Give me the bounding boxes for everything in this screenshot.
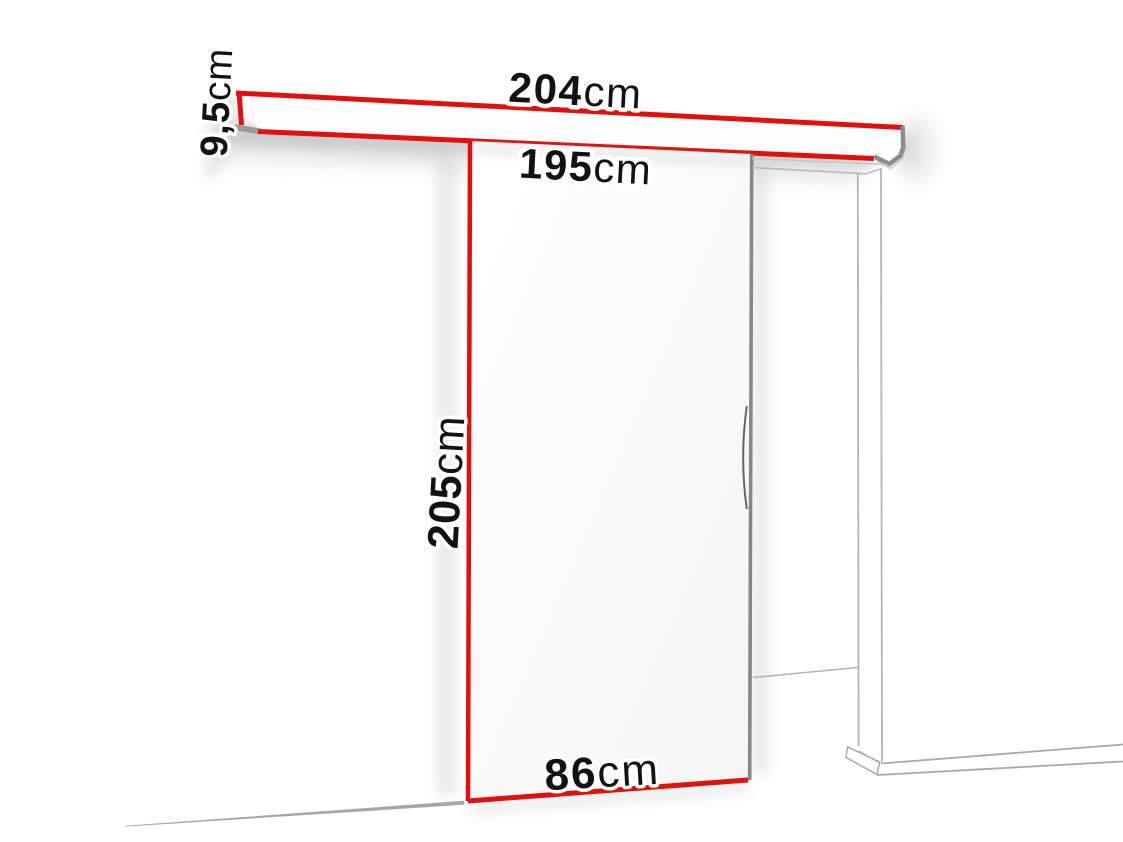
- svg-text:205cm: 205cm: [420, 415, 475, 550]
- svg-text:195cm: 195cm: [518, 140, 653, 194]
- svg-text:9,5cm: 9,5cm: [193, 47, 242, 158]
- svg-text:204cm: 204cm: [508, 64, 644, 118]
- svg-text:86cm: 86cm: [543, 745, 661, 800]
